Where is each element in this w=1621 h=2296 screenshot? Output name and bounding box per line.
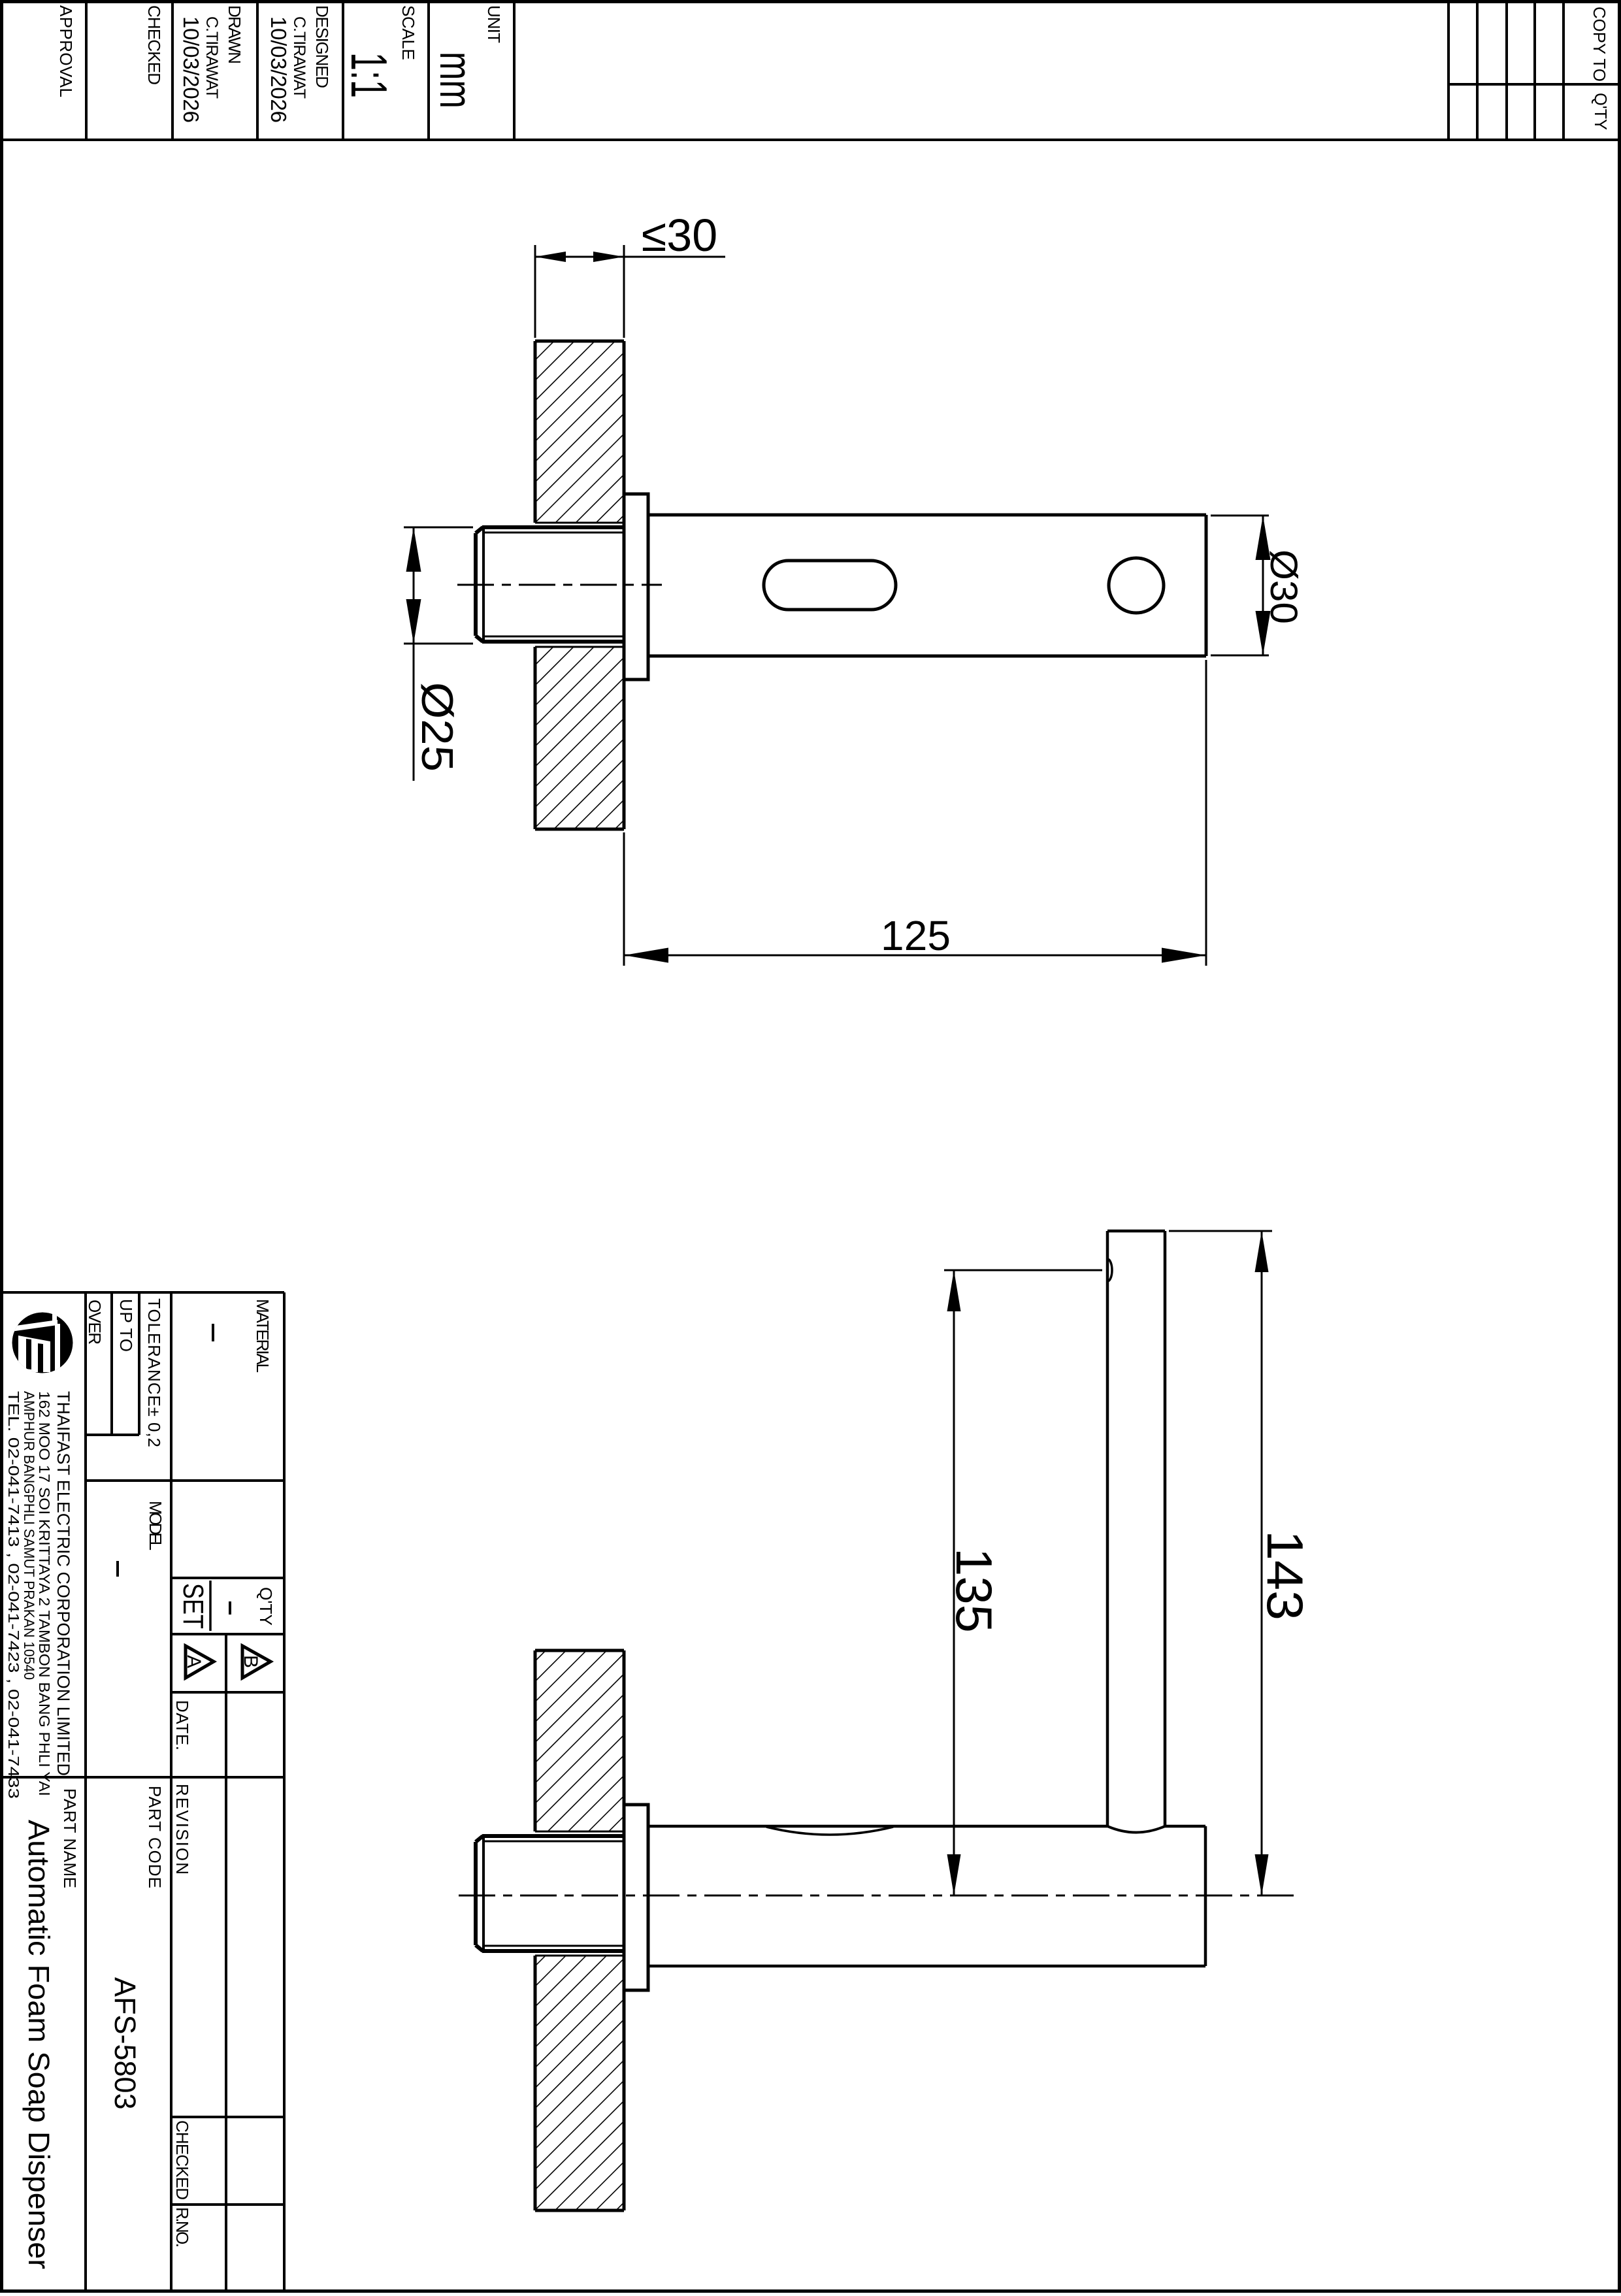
svg-text:A: A: [183, 1655, 205, 1668]
svg-text:OVER: OVER: [85, 1300, 105, 1345]
svg-text:10/03/2026: 10/03/2026: [267, 16, 291, 123]
svg-text:mm: mm: [431, 52, 482, 108]
svg-text:Ø25: Ø25: [412, 682, 462, 772]
svg-text:10/03/2026: 10/03/2026: [179, 16, 203, 123]
svg-text:THAIFAST ELECTRIC CORPORATION: THAIFAST ELECTRIC CORPORATION LIMITED: [54, 1391, 73, 1776]
svg-text:162 MOO 17 SOI KRITTAYA 2 TAMB: 162 MOO 17 SOI KRITTAYA 2 TAMBON BANG PH…: [36, 1391, 53, 1796]
svg-text:TEL. 02-041-7413 , 02-041-7423: TEL. 02-041-7413 , 02-041-7423 , 02-041-…: [5, 1391, 22, 1799]
svg-text:UNIT: UNIT: [484, 5, 504, 43]
svg-text:DESIGNED: DESIGNED: [312, 5, 332, 88]
svg-text:DATE.: DATE.: [172, 1700, 192, 1750]
svg-text:PART CODE: PART CODE: [145, 1786, 165, 1888]
svg-text:C.TIRAWAT: C.TIRAWAT: [203, 16, 221, 99]
svg-text:SET: SET: [177, 1583, 209, 1629]
svg-text:Automatic Foam Soap Dispenser: Automatic Foam Soap Dispenser: [22, 1820, 56, 2269]
svg-text:AFS-5803: AFS-5803: [108, 1977, 142, 2110]
svg-text:SCALE: SCALE: [399, 5, 418, 60]
svg-text:135: 135: [945, 1548, 1003, 1633]
svg-text:AMPHUR BANGPHLI SAMUT PRAKAN 1: AMPHUR BANGPHLI SAMUT PRAKAN 10540: [21, 1391, 37, 1680]
svg-text:125: 125: [881, 912, 951, 959]
svg-text:Q'TY: Q'TY: [1591, 93, 1611, 130]
svg-text:143: 143: [1256, 1530, 1314, 1620]
svg-text:Ø30: Ø30: [1262, 549, 1305, 624]
svg-text:CHECKED: CHECKED: [172, 2120, 192, 2200]
svg-text:MODEL: MODEL: [146, 1501, 165, 1550]
svg-text:R.NO.: R.NO.: [172, 2207, 192, 2248]
svg-text:TOLERANCE± 0,2: TOLERANCE± 0,2: [144, 1298, 164, 1447]
svg-text:≤30: ≤30: [642, 210, 717, 261]
svg-text:PART NAME: PART NAME: [60, 1788, 80, 1888]
svg-text:MATERIAL: MATERIAL: [253, 1299, 272, 1373]
svg-text:COPY TO: COPY TO: [1590, 7, 1609, 82]
svg-text:B: B: [240, 1655, 261, 1668]
svg-text:Q'TY: Q'TY: [256, 1587, 276, 1626]
svg-text:UP TO: UP TO: [116, 1299, 136, 1352]
svg-text:DRAWN: DRAWN: [225, 5, 244, 64]
svg-text:1:1: 1:1: [340, 52, 398, 98]
svg-text:CHECKED: CHECKED: [144, 5, 164, 85]
svg-text:C.TIRAWAT: C.TIRAWAT: [290, 16, 308, 99]
svg-text:APPROVAL: APPROVAL: [56, 5, 76, 97]
